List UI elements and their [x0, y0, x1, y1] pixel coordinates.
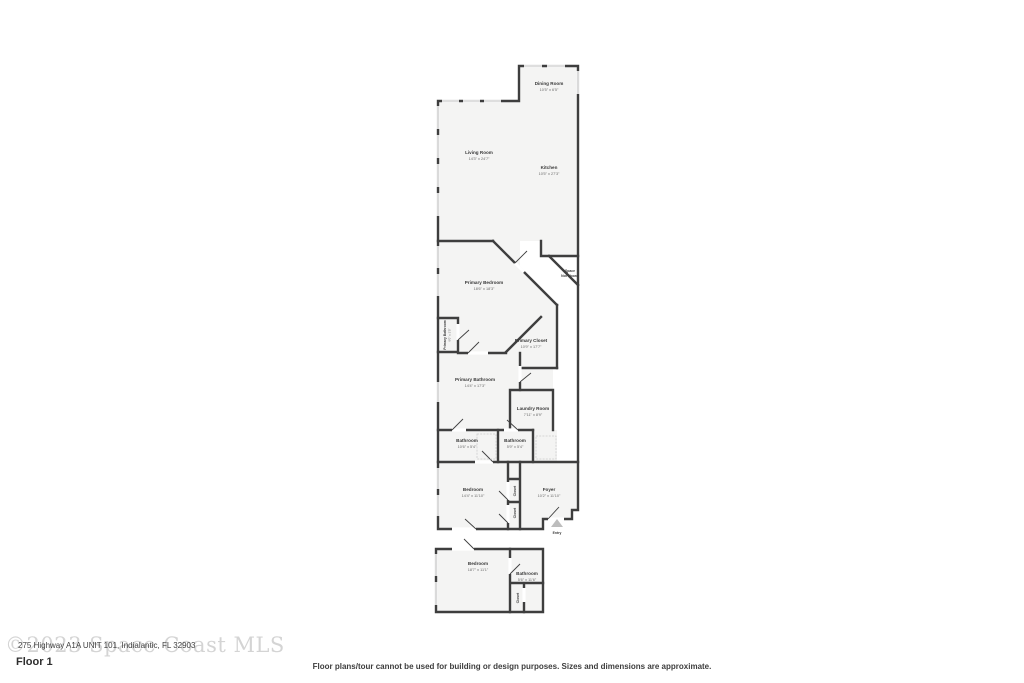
closet-label-2: Closet [513, 507, 517, 518]
room-dims-primary-bath-wc: 6'0" x 3'5" [448, 328, 452, 341]
entry-label: Entry [553, 531, 562, 535]
room-dims-bedroom-2: 18'7" x 11'1" [468, 568, 489, 572]
room-label-laundry: Laundry Room [517, 406, 549, 411]
property-address: 275 Highway A1A UNIT 101, Indialantic, F… [18, 641, 195, 650]
room-dims-bathroom-1: 10'6" x 5'4" [458, 445, 477, 449]
room-label-bedroom-2: Bedroom [468, 561, 488, 566]
room-label-bathroom-2: Bathroom [504, 438, 526, 443]
room-label-primary-bath-wc: Primary Bathroom [443, 320, 447, 350]
room-dims-laundry: 7'11" x 8'9" [524, 413, 543, 417]
room-dims-foyer: 10'2" x 11'10" [538, 494, 561, 498]
room-label-dining: Dining Room [535, 81, 564, 86]
room-dims-living: 14'3" x 24'7" [469, 157, 490, 161]
disclaimer-text: Floor plans/tour cannot be used for buil… [0, 662, 1024, 671]
room-dims-kitchen: 10'5" x 27'3" [539, 172, 560, 176]
room-label-living: Living Room [465, 150, 493, 155]
space-not-shown-label-2: Not Shown [561, 274, 579, 278]
closet-label-1: Closet [513, 485, 517, 496]
room-dims-bedroom-1: 14'4" x 11'10" [462, 494, 485, 498]
room-dims-dining: 10'5" x 6'5" [540, 88, 559, 92]
floor-plan-page: Dining Room 10'5" x 6'5" Living Room 14'… [0, 0, 1024, 683]
room-dims-primary-closet: 10'9" x 17'7" [521, 345, 542, 349]
room-label-foyer: Foyer [543, 487, 556, 492]
room-dims-bathroom-3: 5'6" x 11'6" [518, 578, 537, 582]
closet-label-3: Closet [516, 592, 520, 603]
room-dims-primary-bathroom: 14'4" x 17'3" [465, 384, 486, 388]
room-label-primary-closet: Primary Closet [515, 338, 548, 343]
room-label-primary-bedroom: Primary Bedroom [465, 280, 504, 285]
space-not-shown-label-1: Space [565, 269, 575, 273]
room-dims-primary-bedroom: 18'6" x 18'3" [474, 287, 495, 291]
room-label-bathroom-1: Bathroom [456, 438, 478, 443]
floor-plan-drawing: Dining Room 10'5" x 6'5" Living Room 14'… [0, 0, 1024, 683]
room-label-bathroom-3: Bathroom [516, 571, 538, 576]
room-label-bedroom-1: Bedroom [463, 487, 483, 492]
room-dims-bathroom-2: 5'9" x 5'4" [507, 445, 524, 449]
room-label-kitchen: Kitchen [541, 165, 558, 170]
room-label-primary-bathroom: Primary Bathroom [455, 377, 495, 382]
